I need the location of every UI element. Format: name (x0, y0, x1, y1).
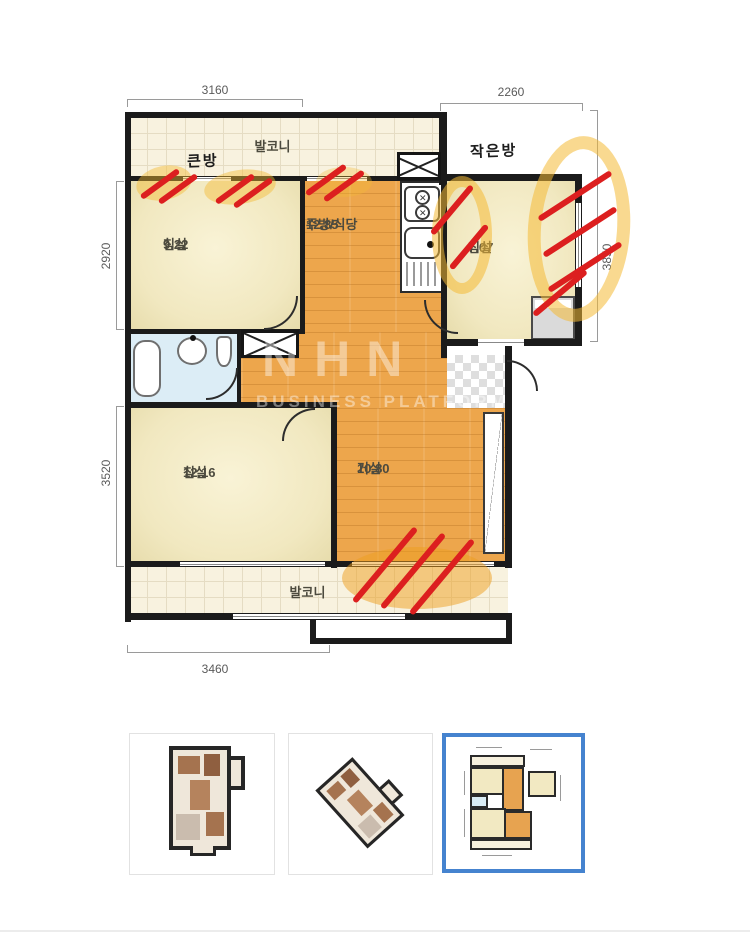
page-bottom-divider (0, 930, 750, 932)
thumbnail-2d-plan-selected[interactable] (442, 733, 585, 873)
wall-segment (300, 180, 305, 332)
dim-tick (329, 645, 330, 653)
dim-line (116, 181, 117, 330)
dim-line (116, 406, 117, 567)
room-label-balcony-top: 발코니 (230, 139, 315, 154)
dim-bottom: 3460 (185, 662, 245, 676)
dim-tick (127, 99, 128, 107)
dim-top-right: 2260 (481, 85, 541, 99)
dish-rack-icon (406, 262, 438, 286)
dim-tick (127, 645, 128, 653)
dim-tick (116, 181, 124, 182)
dim-line (127, 652, 330, 653)
wall-segment (310, 638, 512, 644)
bathtub-icon (133, 340, 161, 397)
dim-tick (116, 566, 124, 567)
wall-segment (125, 112, 131, 182)
dim-left-upper: 2920 (99, 238, 113, 274)
livingroom-floor (331, 408, 506, 566)
window (233, 614, 405, 619)
watermark-logo: NHN (262, 330, 418, 388)
thumbnail-3d-isometric[interactable] (288, 733, 433, 875)
floorplan-page: ✕ ✕ NHN BUSINESS PLATFORM 발코니 침실9.22 주방/… (0, 0, 750, 942)
wall-segment (331, 402, 337, 568)
dim-left-lower: 3520 (99, 455, 113, 491)
toilet-icon (216, 336, 232, 367)
dim-tick (440, 103, 441, 111)
wall-segment (125, 112, 445, 118)
dim-tick (582, 103, 583, 111)
window (180, 562, 325, 566)
bottom-step (313, 620, 509, 639)
dim-tick (590, 341, 598, 342)
door-gap (478, 339, 524, 346)
thumbnail-3d-top-view[interactable] (129, 733, 275, 875)
dim-tick (116, 329, 124, 330)
handwriting-small-room: 작은방 (470, 139, 518, 162)
dim-line (440, 103, 583, 104)
dim-tick (590, 110, 598, 111)
livingroom-door-panel (483, 412, 504, 554)
highlight-blob (342, 547, 492, 609)
watermark-text: BUSINESS PLATFORM (256, 392, 509, 412)
wall-segment (125, 180, 131, 622)
dim-top-left: 3160 (185, 83, 245, 97)
duct-box (397, 152, 441, 180)
dim-tick (116, 406, 124, 407)
dim-tick (302, 99, 303, 107)
dim-line (127, 99, 303, 100)
handwriting-big-room: 큰방 (187, 149, 219, 171)
door-arc-entrance (507, 360, 538, 391)
washbasin-icon (177, 337, 207, 365)
room-label-balcony-bottom: 발코니 (265, 585, 350, 600)
